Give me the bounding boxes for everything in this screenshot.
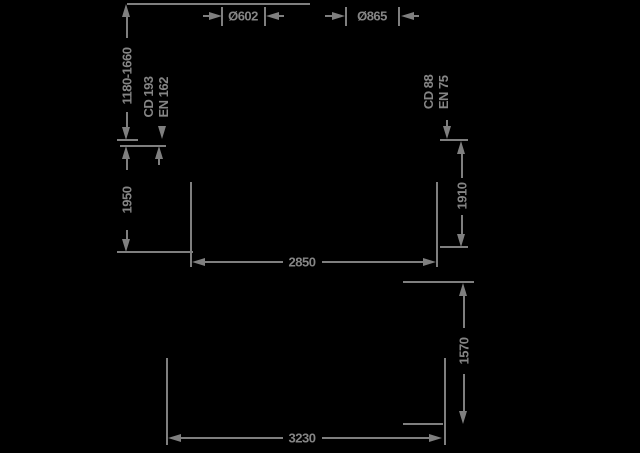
dia-left-label: Ø602: [226, 10, 260, 23]
w3230-line-left: [178, 437, 283, 439]
dia-left-tail-right: [269, 15, 284, 17]
right-block-line2: EN 75: [436, 75, 451, 109]
h1910-line-lower: [461, 215, 463, 235]
w3230-line-right: [322, 437, 432, 439]
bottom-ref-right: [440, 246, 468, 248]
width-outer-label: 3230: [287, 432, 318, 445]
w2850-ext-left: [190, 182, 192, 267]
w3230-arrow-right-icon: [429, 434, 442, 442]
height-left-label: 1950: [121, 185, 134, 216]
dia-right-tick-right: [398, 7, 400, 26]
left-gap-arrow-stub: [158, 158, 160, 165]
height-range-label: 1180-1660: [121, 46, 134, 107]
h1570-line-upper: [463, 295, 465, 328]
w2850-ext-right: [436, 182, 438, 267]
right-block-leader-down-icon: [443, 126, 451, 139]
right-block-line1: CD 88: [421, 75, 436, 109]
range-line-upper: [126, 15, 128, 38]
dia-left-tick-left: [221, 7, 223, 26]
height-right-label: 1910: [456, 181, 469, 212]
w2850-arrow-right-icon: [423, 258, 436, 266]
h1910-line-upper: [461, 153, 463, 178]
height-lower-label: 1570: [458, 336, 471, 367]
range-line-lower: [126, 112, 128, 128]
left-block-leader-down-icon: [158, 126, 166, 139]
h1570-line-lower: [463, 374, 465, 412]
dia-right-label: Ø865: [355, 10, 389, 23]
left-block-line2: EN 162: [156, 76, 171, 117]
dia-right-arrow-right-icon: [332, 12, 345, 20]
left-block-line1: CD 193: [141, 76, 156, 117]
mid-tick-left-upper: [117, 139, 138, 141]
h1570-ref-bottom: [403, 423, 443, 425]
w2850-line-right: [322, 261, 426, 263]
dia-right-tick-left: [345, 7, 347, 26]
right-block-label: CD 88 EN 75: [421, 73, 451, 111]
width-inner-label: 2850: [287, 256, 318, 269]
w3230-ext-right: [444, 358, 446, 445]
w2850-line-left: [202, 261, 283, 263]
h1570-arrow-down-icon: [459, 411, 467, 424]
h1950-line-upper: [126, 158, 128, 170]
w3230-ext-left: [166, 358, 168, 445]
dimension-drawing: Ø602 Ø865 1180-1660 CD 193 EN 162 1950 C…: [0, 0, 640, 453]
left-block-label: CD 193 EN 162: [141, 74, 171, 119]
bottom-ref-left: [117, 251, 193, 253]
dia-right-tail-right: [404, 15, 419, 17]
top-reference-line: [127, 3, 310, 5]
